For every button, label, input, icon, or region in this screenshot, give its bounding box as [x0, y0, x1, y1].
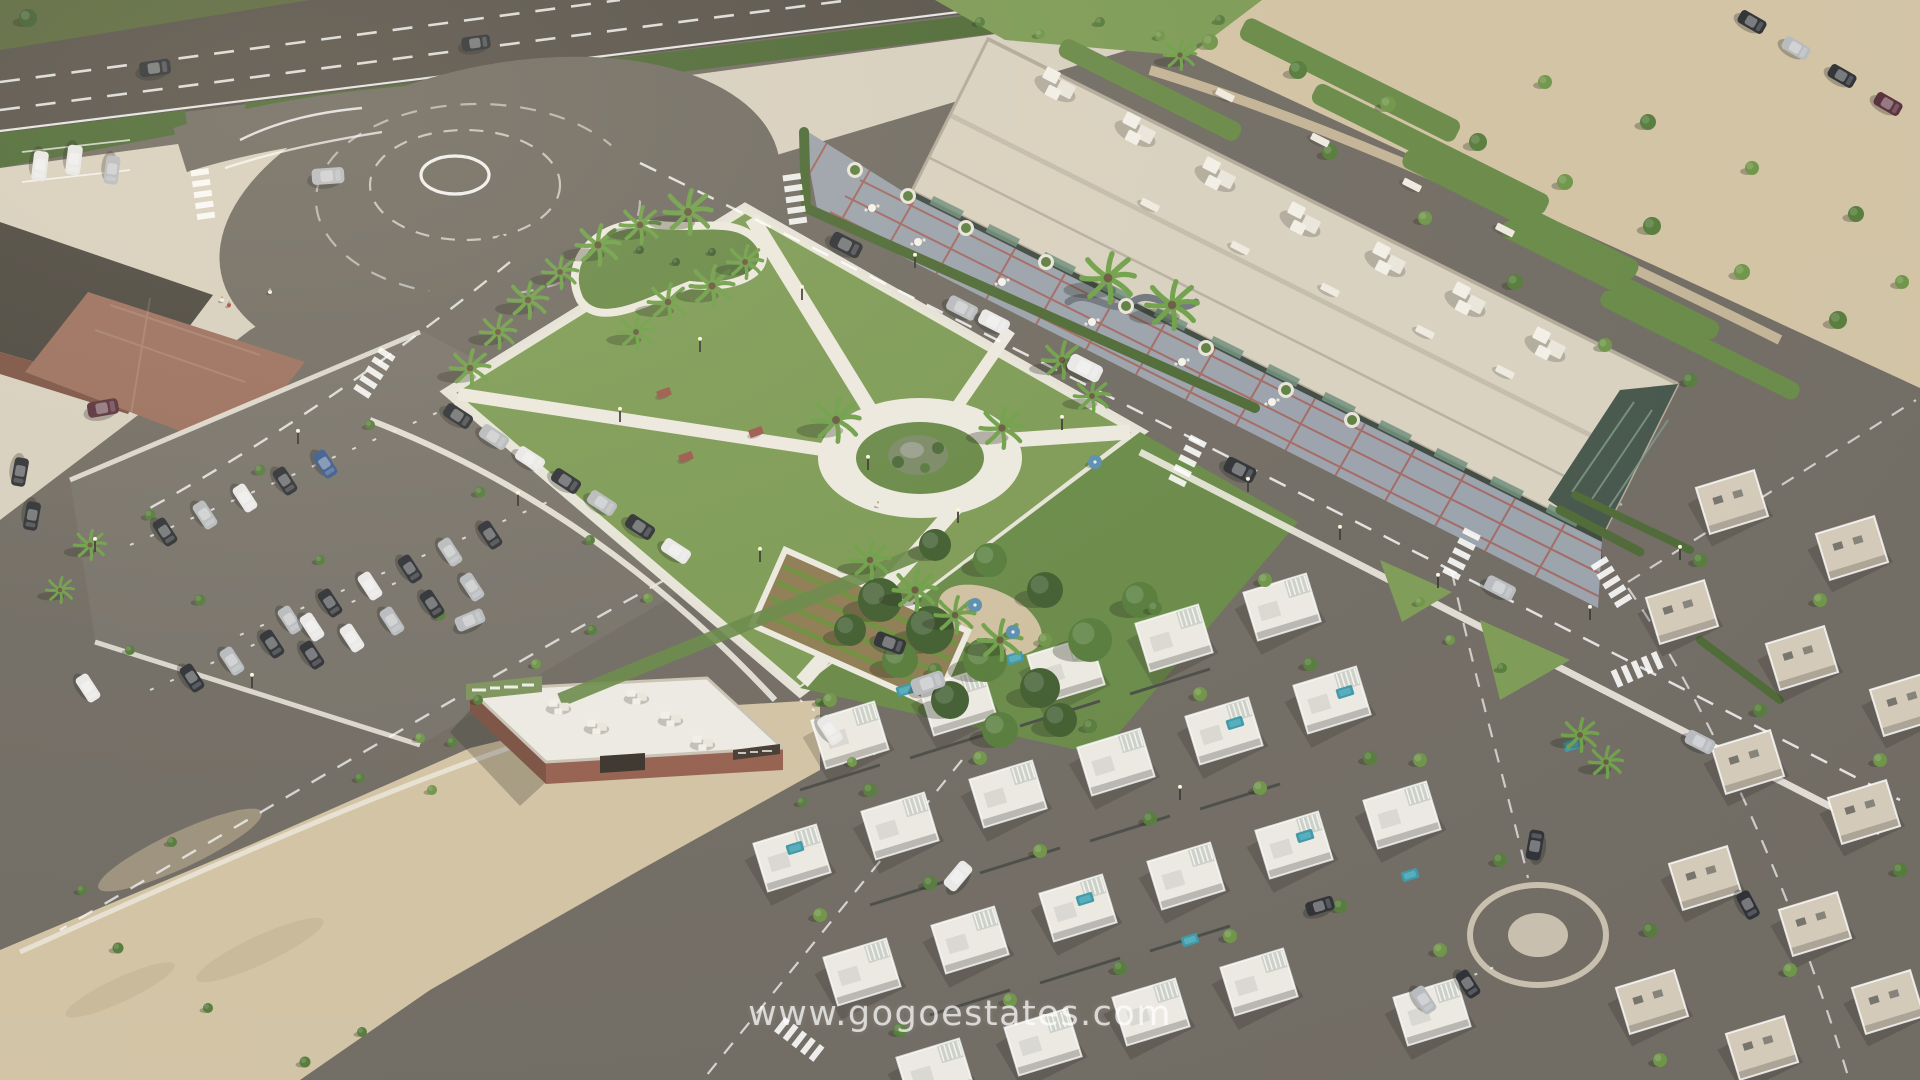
aerial-render: www.gogoestates.com — [0, 0, 1920, 1080]
aerial-render-canvas — [0, 0, 1920, 1080]
light-haze — [0, 0, 1920, 1080]
